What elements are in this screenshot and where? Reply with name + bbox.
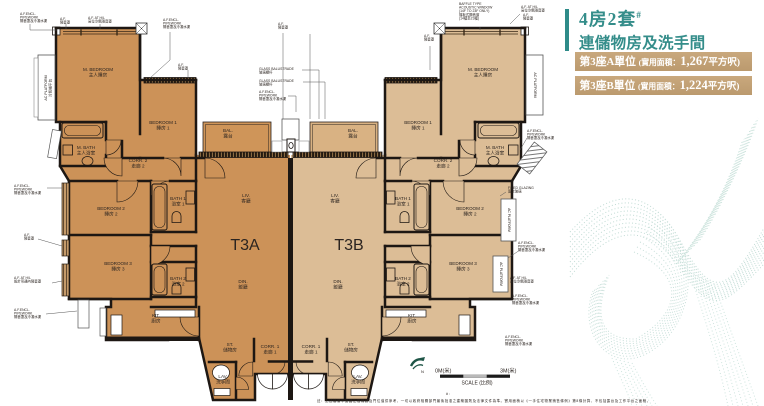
svg-text:隔音罩及冷凝水渠: 隔音罩及冷凝水渠 xyxy=(512,300,540,305)
svg-text:隔音罩及冷凝水渠: 隔音罩及冷凝水渠 xyxy=(20,18,48,23)
svg-text:主人睡房: 主人睡房 xyxy=(89,72,108,79)
svg-text:浴室 1: 浴室 1 xyxy=(396,201,409,208)
svg-text:飯廳: 飯廳 xyxy=(333,284,343,291)
svg-text:BAL.: BAL. xyxy=(348,128,358,133)
svg-text:隔音罩及冷凝水渠: 隔音罩及冷凝水渠 xyxy=(163,24,191,29)
svg-text:廚房: 廚房 xyxy=(407,318,417,325)
svg-text:隔音罩及冷凝水渠: 隔音罩及冷凝水渠 xyxy=(527,135,555,140)
svg-text:BATH 1: BATH 1 xyxy=(395,196,411,201)
svg-text:浴室 2: 浴室 2 xyxy=(396,281,409,288)
svg-text:AC PLATFORM: AC PLATFORM xyxy=(499,262,503,286)
svg-text:洗手間: 洗手間 xyxy=(216,379,230,386)
svg-text:睡房 1: 睡房 1 xyxy=(411,125,424,132)
svg-text:KIT.: KIT. xyxy=(408,313,416,318)
svg-text:儲物房: 儲物房 xyxy=(223,347,237,354)
svg-text:客廳: 客廳 xyxy=(330,198,340,205)
svg-text:冷氣機平台: 冷氣機平台 xyxy=(48,79,53,97)
svg-text:浴室 2: 浴室 2 xyxy=(171,281,184,288)
svg-text:浴室 1: 浴室 1 xyxy=(171,201,184,208)
svg-text:BEDROOM 2: BEDROOM 2 xyxy=(97,206,125,211)
svg-text:主人浴室: 主人浴室 xyxy=(486,150,505,157)
svg-text:走廊 2: 走廊 2 xyxy=(131,163,144,170)
svg-text:隔音罩及冷凝水渠: 隔音罩及冷凝水渠 xyxy=(14,190,42,195)
svg-text:M. BATH: M. BATH xyxy=(77,145,95,150)
svg-text:BEDROOM 1: BEDROOM 1 xyxy=(149,120,177,125)
svg-text:玻璃欄杆: 玻璃欄杆 xyxy=(259,70,273,75)
svg-text:AC PLATFORM: AC PLATFORM xyxy=(533,72,537,97)
svg-text:高位冷氣隔音罩: 高位冷氣隔音罩 xyxy=(88,19,112,24)
svg-text:主人睡房: 主人睡房 xyxy=(474,72,493,79)
svg-text:BEDROOM 1: BEDROOM 1 xyxy=(404,120,432,125)
svg-text:LAV.: LAV. xyxy=(353,374,362,379)
svg-text:BATH 2: BATH 2 xyxy=(170,276,186,281)
svg-text:玻璃欄杆: 玻璃欄杆 xyxy=(259,82,273,87)
svg-text:高位冷氣隔音罩: 高位冷氣隔音罩 xyxy=(521,8,545,13)
svg-text:走廊 2: 走廊 2 xyxy=(436,163,449,170)
svg-text:# :: # : xyxy=(446,392,450,396)
svg-text:隔音罩: 隔音罩 xyxy=(60,20,71,25)
svg-text:設計吊通內隔音罩: 設計吊通內隔音罩 xyxy=(14,279,42,284)
svg-text:BATH 2: BATH 2 xyxy=(395,276,411,281)
svg-text:隔音罩: 隔音罩 xyxy=(178,66,189,71)
svg-text:睡房 1: 睡房 1 xyxy=(156,125,169,132)
svg-text:T3A: T3A xyxy=(230,237,260,254)
svg-text:3M(米): 3M(米) xyxy=(500,367,517,375)
svg-text:露台: 露台 xyxy=(348,133,358,140)
svg-text:主人浴室: 主人浴室 xyxy=(77,150,96,157)
svg-text:註：上述樓層平面圖之間隔牆及門位僅供參考，一切以政府相關部門: 註：上述樓層平面圖之間隔牆及門位僅供參考，一切以政府相關部門最後批准之建築圖則及… xyxy=(317,398,651,403)
svg-text:睡房 2: 睡房 2 xyxy=(463,211,476,218)
svg-text:ST.: ST. xyxy=(227,342,234,347)
svg-text:客廳: 客廳 xyxy=(241,198,251,205)
svg-text:ST.: ST. xyxy=(348,342,355,347)
svg-text:露台: 露台 xyxy=(223,133,233,140)
svg-text:高位冷氣隔音罩: 高位冷氣隔音罩 xyxy=(510,279,534,284)
svg-text:走廊 1: 走廊 1 xyxy=(304,349,317,356)
svg-text:睡房 3: 睡房 3 xyxy=(111,266,124,273)
svg-text:N: N xyxy=(421,369,424,374)
svg-text:睡房 2: 睡房 2 xyxy=(104,211,117,218)
svg-text:隔音罩及冷凝水渠: 隔音罩及冷凝水渠 xyxy=(518,247,546,252)
svg-text:固定玻璃: 固定玻璃 xyxy=(508,189,522,194)
svg-text:隔音罩及冷凝水渠: 隔音罩及冷凝水渠 xyxy=(505,341,533,346)
svg-text:KIT.: KIT. xyxy=(152,313,160,318)
svg-text:CORR. 1: CORR. 1 xyxy=(261,344,280,349)
svg-text:儲物房: 儲物房 xyxy=(344,347,358,354)
svg-text:SCALE (比例): SCALE (比例) xyxy=(461,380,492,387)
svg-text:飯廳: 飯廳 xyxy=(238,284,248,291)
svg-text:BAL.: BAL. xyxy=(223,128,233,133)
svg-text:隔音罩: 隔音罩 xyxy=(523,16,534,21)
svg-text:隔音罩: 隔音罩 xyxy=(424,37,435,42)
svg-text:CORR. 2: CORR. 2 xyxy=(434,158,453,163)
svg-text:M. BEDROOM: M. BEDROOM xyxy=(468,67,498,72)
svg-text:LAV.: LAV. xyxy=(218,374,227,379)
svg-text:BATH 1: BATH 1 xyxy=(170,196,186,201)
svg-text:LIV.: LIV. xyxy=(242,193,250,198)
svg-text:睡房 3: 睡房 3 xyxy=(456,266,469,273)
svg-text:隔音罩: 隔音罩 xyxy=(278,25,289,30)
svg-text:BEDROOM 3: BEDROOM 3 xyxy=(449,261,477,266)
svg-text:走廊 1: 走廊 1 xyxy=(263,349,276,356)
svg-text:M. BATH: M. BATH xyxy=(486,145,504,150)
svg-text:M. BEDROOM: M. BEDROOM xyxy=(83,67,113,72)
svg-text:隔音罩及冷凝水渠: 隔音罩及冷凝水渠 xyxy=(14,314,42,319)
svg-text:T3B: T3B xyxy=(334,237,363,254)
svg-text:(14樓至23樓): (14樓至23樓) xyxy=(459,15,479,20)
svg-text:LIV.: LIV. xyxy=(331,193,339,198)
svg-text:BEDROOM 3: BEDROOM 3 xyxy=(104,261,132,266)
svg-text:0M(米): 0M(米) xyxy=(435,367,452,375)
svg-text:隔音罩: 隔音罩 xyxy=(24,236,35,241)
svg-text:CORR. 1: CORR. 1 xyxy=(302,344,321,349)
svg-text:AC PLATFORM: AC PLATFORM xyxy=(44,75,48,100)
svg-text:DIN.: DIN. xyxy=(333,279,342,284)
svg-text:DIN.: DIN. xyxy=(238,279,247,284)
svg-text:BEDROOM 2: BEDROOM 2 xyxy=(456,206,484,211)
svg-text:AC PLATFORM: AC PLATFORM xyxy=(507,208,511,232)
svg-text:隔音罩及冷凝水渠: 隔音罩及冷凝水渠 xyxy=(259,96,287,101)
svg-text:CORR. 2: CORR. 2 xyxy=(129,158,148,163)
svg-text:廚房: 廚房 xyxy=(151,318,161,325)
svg-text:洗手間: 洗手間 xyxy=(351,379,365,386)
